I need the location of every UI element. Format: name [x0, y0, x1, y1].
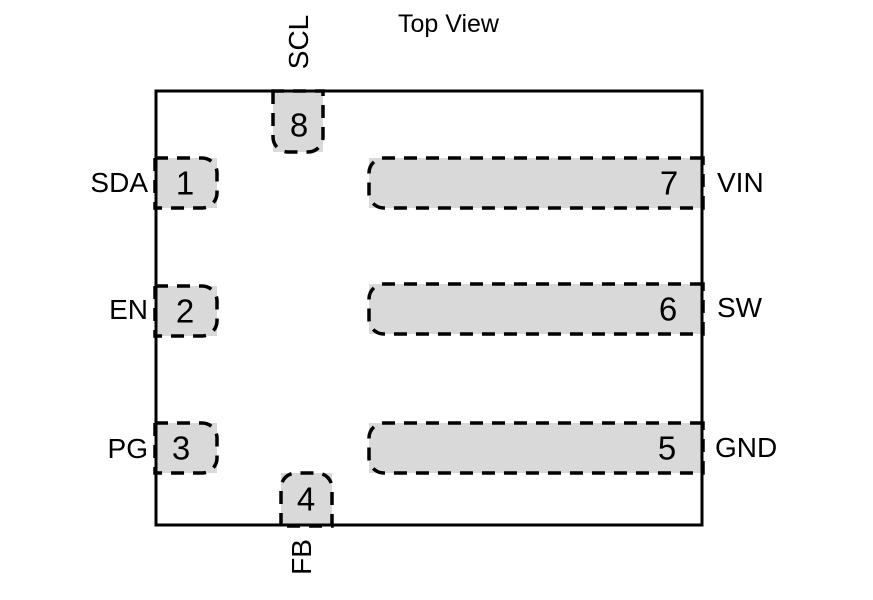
pin-4-number: 4	[297, 483, 315, 516]
pin-6-label-sw: SW	[717, 294, 762, 322]
pin-7-label-vin: VIN	[717, 169, 764, 197]
pinout-diagram: Top View 1 2 3 4 5 6 7 8 SDA EN PG VIN S…	[0, 0, 873, 600]
pin-6-number: 6	[659, 293, 677, 326]
pin-2-label-en: EN	[109, 296, 148, 324]
pad-6-fill	[369, 284, 703, 334]
pin-1-number: 1	[176, 167, 194, 200]
pad-7-fill	[369, 158, 703, 208]
pin-5-label-gnd: GND	[715, 434, 777, 462]
pin-2-number: 2	[176, 295, 194, 328]
pin-3-number: 3	[172, 432, 190, 465]
pin-3-label-pg: PG	[108, 435, 148, 463]
pin-8-number: 8	[290, 109, 308, 142]
pin-5-number: 5	[658, 432, 676, 465]
pad-5-fill	[369, 423, 703, 473]
pin-7-number: 7	[660, 167, 678, 200]
diagram-title: Top View	[398, 12, 499, 37]
pin-1-label-sda: SDA	[90, 169, 148, 197]
pin-4-label-fb: FB	[288, 539, 316, 575]
pin-8-label-scl: SCL	[285, 15, 313, 69]
